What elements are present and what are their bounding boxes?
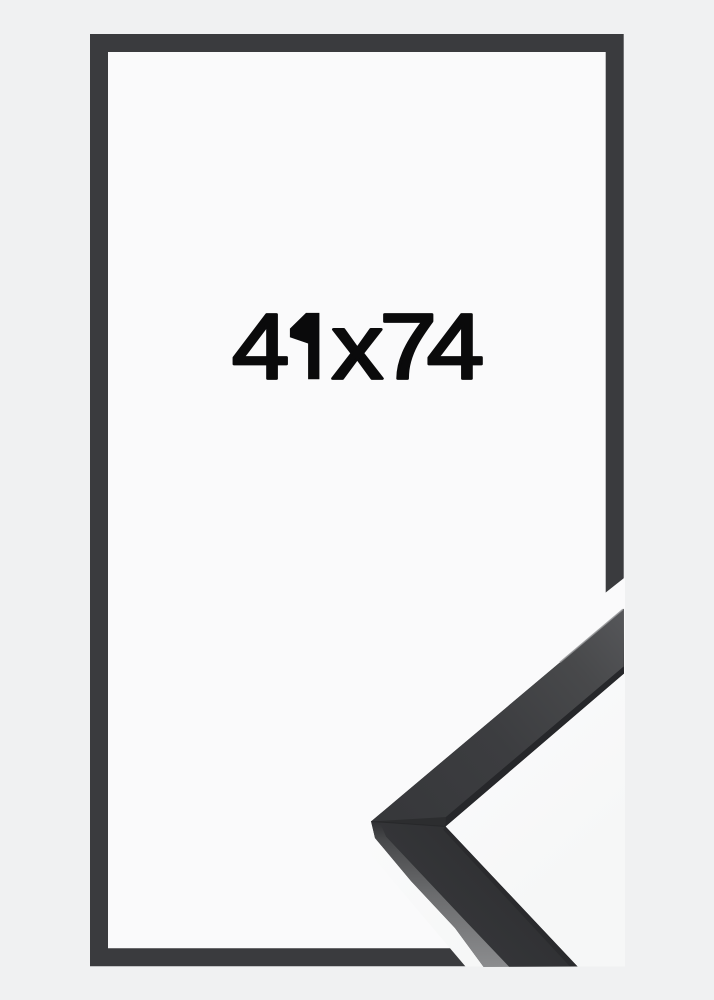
svg-text:4: 4 [232,295,290,399]
svg-text:x: x [331,295,383,399]
svg-text:4: 4 [427,295,485,399]
